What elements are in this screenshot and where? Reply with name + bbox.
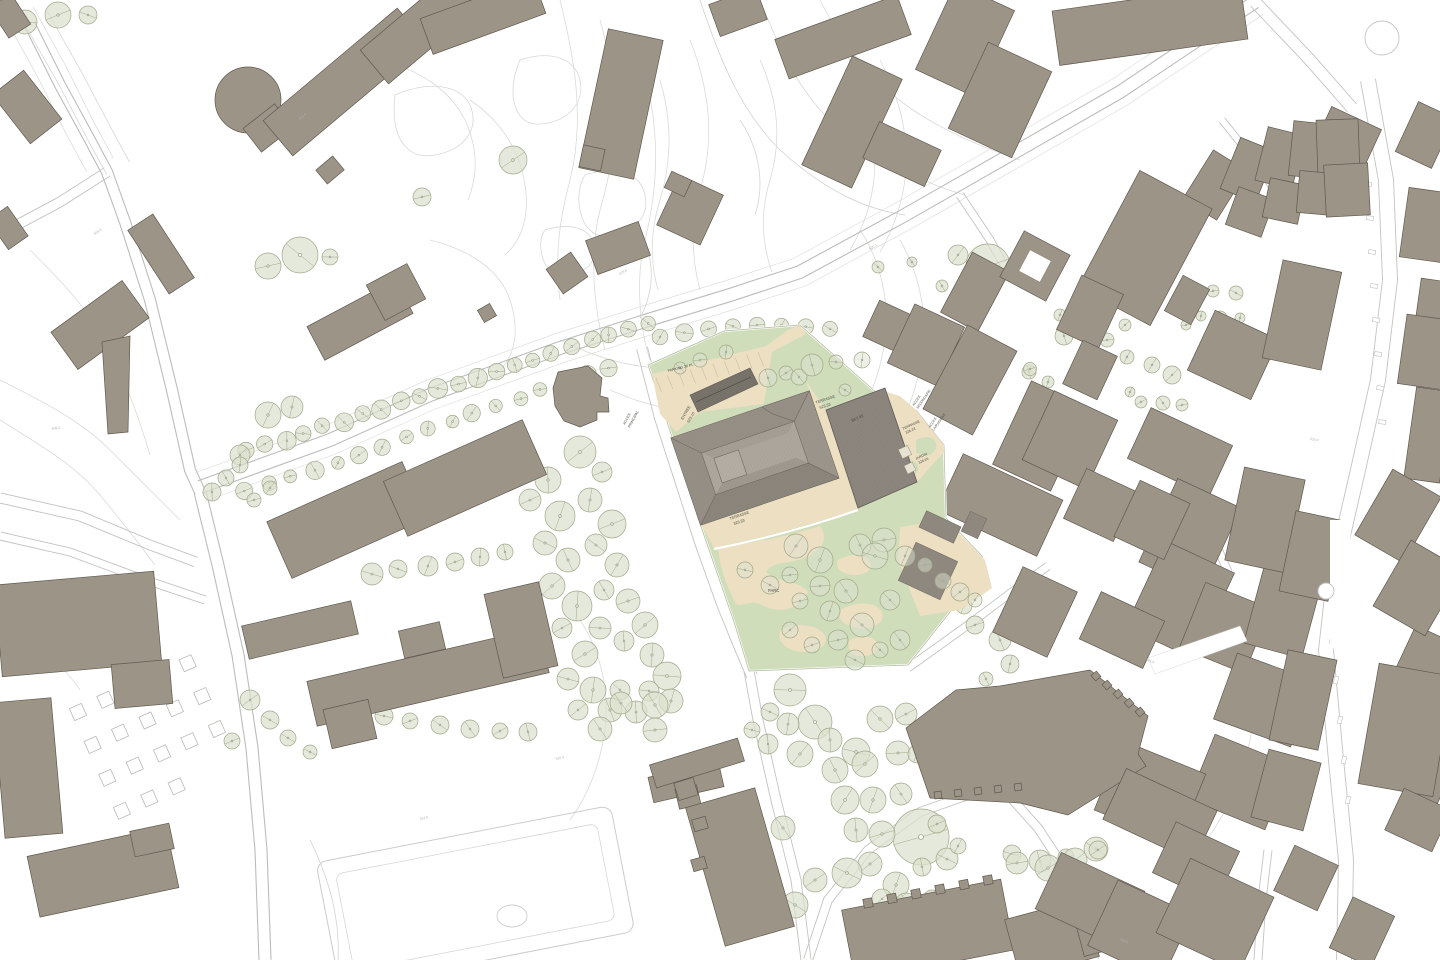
svg-text:PARC: PARC	[768, 588, 779, 593]
